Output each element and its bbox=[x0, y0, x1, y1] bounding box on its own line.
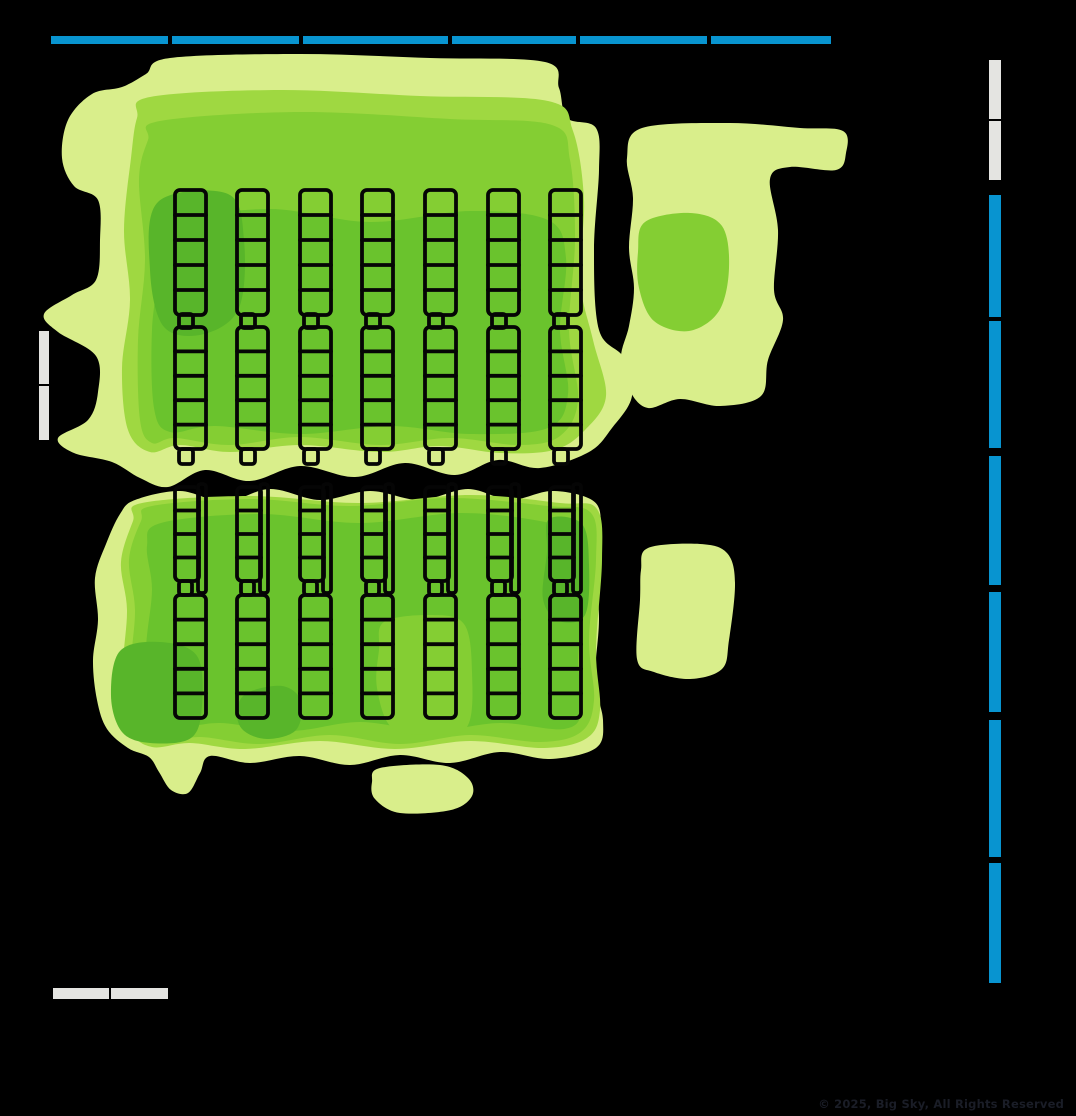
top-wall-shelves bbox=[51, 36, 831, 44]
copyright-text: © 2025, Big Sky, All Rights Reserved bbox=[818, 1097, 1064, 1111]
left-wall-door-segment bbox=[39, 386, 49, 440]
top-wall-shelf-segment bbox=[51, 36, 168, 44]
right-wall-shelf-segment bbox=[989, 863, 1001, 983]
right-wall-shelf-segment bbox=[989, 592, 1001, 712]
top-wall-shelf-segment bbox=[172, 36, 299, 44]
right-wall-shelf-segment bbox=[989, 195, 1001, 317]
right-wall-shelf-segment bbox=[989, 321, 1001, 448]
heatmap-canvas bbox=[0, 0, 1076, 1116]
right-wall-shelf-segment bbox=[989, 121, 1001, 180]
top-wall-shelf-segment bbox=[303, 36, 448, 44]
right-wall-shelf-segment bbox=[989, 456, 1001, 585]
left-wall-door bbox=[39, 331, 49, 440]
top-wall-shelf-segment bbox=[452, 36, 576, 44]
heat-blob-l1-wing-lower bbox=[636, 544, 735, 679]
heat-blob-l1-pill bbox=[371, 764, 473, 813]
right-wall-shelves bbox=[989, 60, 1001, 983]
heat-blob-l3-island-wing bbox=[637, 213, 729, 331]
right-wall-shelf-segment bbox=[989, 720, 1001, 857]
bottom-wall-door bbox=[53, 988, 168, 999]
bottom-wall-door-segment bbox=[111, 988, 168, 999]
right-wall-shelf-segment bbox=[989, 60, 1001, 119]
heat-blobs bbox=[44, 54, 848, 814]
top-wall-shelf-segment bbox=[711, 36, 831, 44]
left-wall-door-segment bbox=[39, 331, 49, 384]
store-heatmap-visualization: © 2025, Big Sky, All Rights Reserved bbox=[0, 0, 1076, 1116]
bottom-wall-door-segment bbox=[53, 988, 109, 999]
top-wall-shelf-segment bbox=[580, 36, 707, 44]
